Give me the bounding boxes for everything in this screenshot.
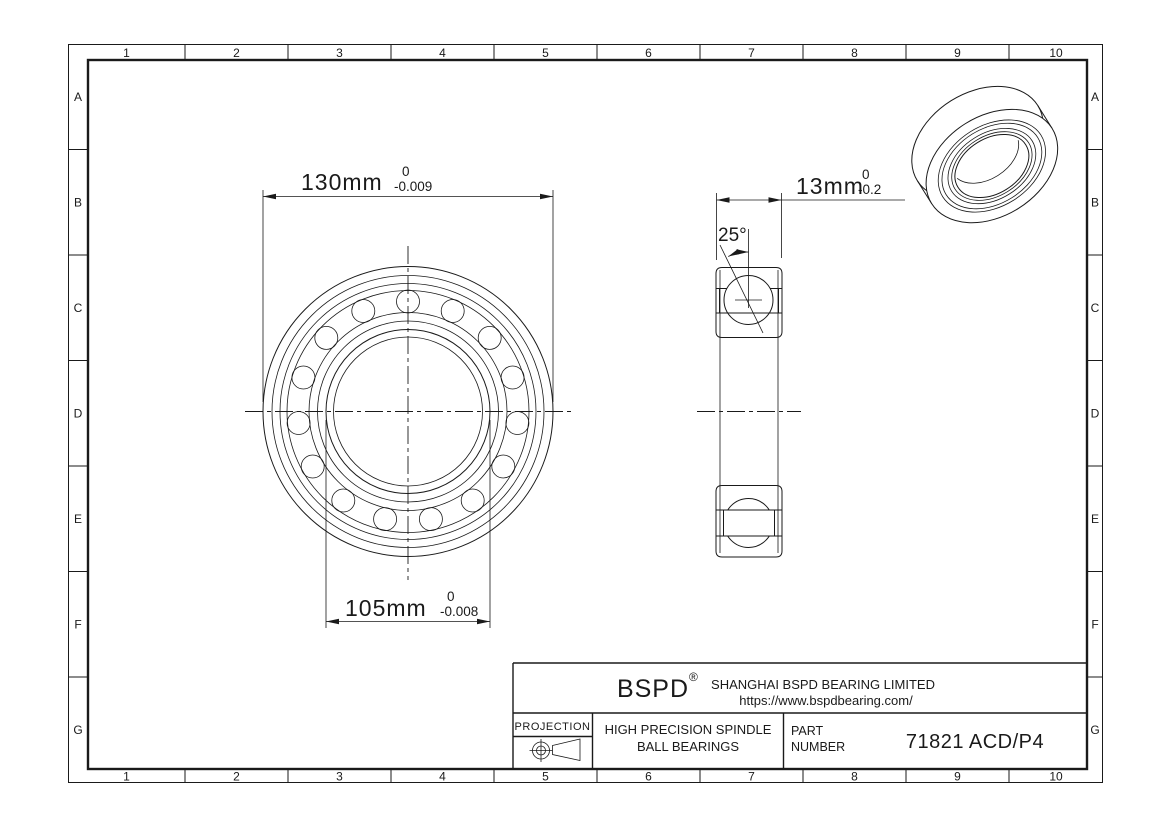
row-label-right: B	[1091, 195, 1099, 209]
row-label-right: E	[1091, 512, 1099, 526]
width-tol-upper: 0	[862, 167, 870, 182]
col-label-top: 7	[748, 46, 755, 60]
bore-tol-upper: 0	[447, 589, 455, 604]
part-number-label-line1: PART	[791, 724, 824, 738]
dimension-width: 13mm 0 -0.2	[717, 167, 906, 260]
col-label-top: 10	[1049, 46, 1063, 60]
part-number-value: 71821 ACD/P4	[906, 731, 1044, 753]
dim-arrow-left	[263, 194, 276, 199]
row-label-left: C	[74, 301, 83, 315]
col-label-top: 1	[123, 46, 130, 60]
col-label-bottom: 5	[542, 770, 549, 784]
row-label-left: A	[74, 90, 82, 104]
first-angle-projection-icon	[530, 739, 581, 762]
row-label-right: D	[1091, 406, 1100, 420]
company-logo: BSPD	[617, 675, 689, 703]
col-label-top: 3	[336, 46, 343, 60]
bore-tol-lower: -0.008	[440, 604, 478, 619]
angle-arrow-left	[728, 249, 740, 257]
contact-angle-value: 25°	[718, 225, 747, 246]
col-label-top: 2	[233, 46, 240, 60]
col-label-bottom: 2	[233, 770, 240, 784]
projection-label: PROJECTION	[515, 721, 591, 733]
col-label-top: 9	[954, 46, 961, 60]
company-name: SHANGHAI BSPD BEARING LIMITED	[711, 677, 935, 692]
bore-value: 105mm	[345, 595, 427, 621]
dim-arrow-right	[477, 619, 490, 624]
col-label-bottom: 1	[123, 770, 130, 784]
col-label-top: 4	[439, 46, 446, 60]
od-tol-lower: -0.009	[394, 179, 432, 194]
drawing-canvas: 1 2 3 4 5 6 7 8 9 10 1 2 3 4 5 6 7 8 9 1…	[0, 0, 1170, 827]
col-label-top: 6	[645, 46, 652, 60]
row-label-right: C	[1091, 301, 1100, 315]
dim-arrow-right	[769, 197, 782, 202]
bearing-section-view	[697, 229, 801, 557]
od-tol-upper: 0	[402, 164, 410, 179]
title-block: BSPD ® SHANGHAI BSPD BEARING LIMITED htt…	[513, 663, 1087, 769]
col-label-bottom: 3	[336, 770, 343, 784]
product-title-line1: HIGH PRECISION SPINDLE	[605, 722, 772, 737]
col-label-bottom: 10	[1049, 770, 1063, 784]
dim-arrow-left	[326, 619, 339, 624]
col-label-bottom: 8	[851, 770, 858, 784]
col-label-bottom: 7	[748, 770, 755, 784]
dim-arrow-right	[540, 194, 553, 199]
row-label-left: F	[74, 617, 81, 631]
part-number-label-line2: NUMBER	[791, 740, 845, 754]
outer-ring-section-bottom	[716, 536, 782, 557]
product-title-line2: BALL BEARINGS	[637, 739, 739, 754]
row-label-left: E	[74, 512, 82, 526]
row-label-left: D	[74, 406, 83, 420]
row-label-left: B	[74, 195, 82, 209]
col-label-top: 8	[851, 46, 858, 60]
inner-ring-section-bottom	[716, 486, 782, 511]
row-label-right: A	[1091, 90, 1099, 104]
bearing-isometric-view	[891, 63, 1079, 246]
width-tol-lower: -0.2	[858, 182, 881, 197]
dim-arrow-left	[717, 197, 730, 202]
engineering-drawing-sheet: 1 2 3 4 5 6 7 8 9 10 1 2 3 4 5 6 7 8 9 1…	[0, 0, 1170, 827]
row-label-left: G	[73, 723, 82, 737]
col-label-bottom: 6	[645, 770, 652, 784]
bearing-front-view	[245, 246, 572, 580]
registered-trademark: ®	[689, 670, 698, 684]
company-website: https://www.bspdbearing.com/	[739, 693, 913, 708]
col-label-bottom: 4	[439, 770, 446, 784]
col-label-bottom: 9	[954, 770, 961, 784]
row-label-right: G	[1090, 723, 1099, 737]
row-label-right: F	[1091, 617, 1098, 631]
width-value: 13mm	[796, 173, 864, 199]
od-value: 130mm	[301, 169, 383, 195]
col-label-top: 5	[542, 46, 549, 60]
